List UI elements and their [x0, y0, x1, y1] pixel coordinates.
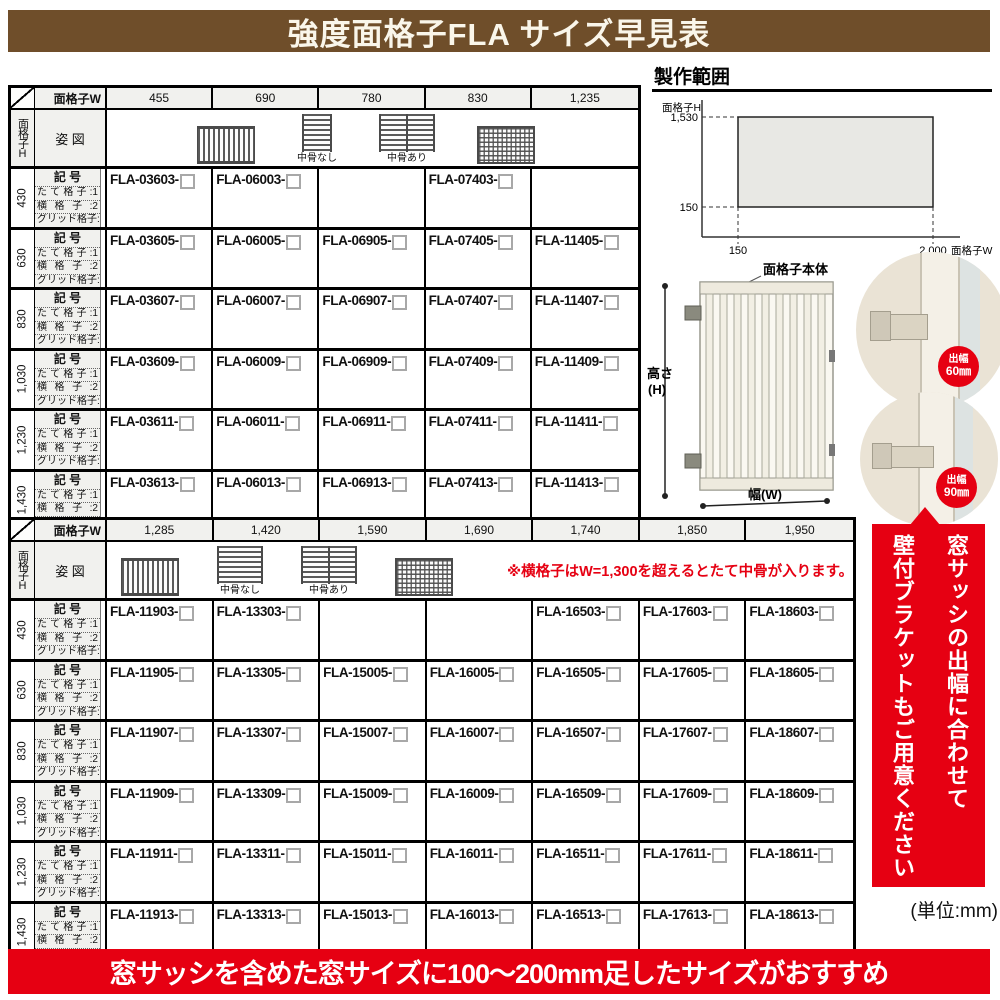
row-height-header: 1,030	[11, 351, 35, 409]
code-cell: FLA-11909-	[107, 783, 214, 841]
code-suffix-box	[180, 477, 195, 492]
code-cell: FLA-17605-	[640, 662, 747, 720]
code-suffix-box	[712, 848, 727, 863]
legend-line: グリッド格子:3	[35, 334, 100, 348]
code-cell: FLA-11409-	[532, 351, 638, 409]
figure-cell: 中骨なし中骨あり	[107, 110, 638, 166]
code-cell: FLA-18607-	[746, 722, 853, 780]
code-cell: FLA-13311-	[214, 843, 321, 901]
legend-line: 横格子:2	[35, 934, 100, 948]
product-code: FLA-18603-	[749, 604, 818, 619]
width-axis-label: 面格子W	[35, 520, 107, 540]
code-suffix-box	[818, 848, 833, 863]
code-cell: FLA-18611-	[746, 843, 853, 901]
width-axis-label: 面格子W	[35, 88, 107, 108]
corner-diagonal-cell	[11, 88, 35, 108]
legend-line: 横格子:2	[35, 442, 100, 456]
horizontal-midbone-lattice-icon-glyph	[379, 114, 435, 152]
product-code: FLA-16011-	[430, 846, 498, 861]
legend-line: 横格子:2	[35, 381, 100, 395]
product-code: FLA-17603-	[643, 604, 712, 619]
legend-box: 記 号たて格子:1横格子:2グリッド格子:3	[35, 783, 101, 841]
row-height-value: 1,030	[17, 365, 29, 394]
code-suffix-box	[819, 727, 834, 742]
corner-diagonal-cell	[11, 520, 35, 540]
product-code: FLA-03607-	[110, 293, 179, 308]
product-code: FLA-13307-	[217, 725, 286, 740]
row-height-value: 1,430	[17, 918, 29, 947]
product-code: FLA-07411-	[429, 414, 497, 429]
code-suffix-box	[819, 606, 834, 621]
callout-line-2: 壁付ブラケットもご用意ください	[875, 534, 929, 887]
grid-lattice-icon	[477, 112, 535, 164]
legend-line: 横格子:2	[35, 753, 100, 767]
product-code: FLA-11913-	[110, 907, 178, 922]
code-cell: FLA-03609-	[107, 351, 213, 409]
product-code: FLA-06909-	[322, 354, 391, 369]
code-suffix-box	[286, 848, 301, 863]
code-suffix-box	[499, 909, 514, 924]
range-h-max: 1,530	[670, 112, 698, 124]
width-header-row: 面格子W4556907808301,235	[11, 88, 638, 110]
figure-cell: 中骨なし中骨あり※横格子はW=1,300を超えるとたて中骨が入ります。	[107, 542, 853, 598]
product-code: FLA-06007-	[216, 293, 285, 308]
column-width-header: 780	[319, 88, 425, 108]
figure-row: 面格子H姿 図中骨なし中骨あり	[11, 110, 638, 169]
product-code: FLA-16505-	[536, 665, 605, 680]
product-code: FLA-11409-	[535, 354, 603, 369]
bone-label: 中骨あり	[309, 586, 349, 596]
product-code: FLA-11907-	[110, 725, 178, 740]
code-cell: FLA-06909-	[319, 351, 425, 409]
product-code: FLA-17605-	[643, 665, 712, 680]
row-legend: 記 号たて格子:1横格子:2グリッド格子:3	[35, 290, 107, 348]
lattice-bars	[706, 294, 825, 478]
product-code: FLA-16503-	[536, 604, 605, 619]
code-suffix-box	[498, 416, 513, 431]
code-cell: FLA-11411-	[532, 411, 638, 469]
row-height-value: 1,030	[17, 797, 29, 826]
code-suffix-box	[286, 295, 301, 310]
size-row-430: 430記 号たて格子:1横格子:2グリッド格子:3FLA-03603-FLA-0…	[11, 169, 638, 230]
product-code: FLA-11911-	[110, 846, 177, 861]
dim-height-unit: (H)	[648, 382, 666, 397]
legend-box: 記 号たて格子:1横格子:2グリッド格子:3	[35, 843, 101, 901]
row-legend: 記 号たて格子:1横格子:2グリッド格子:3	[35, 783, 107, 841]
row-height-value: 430	[17, 620, 29, 639]
product-code: FLA-18613-	[749, 907, 818, 922]
legend-box: 記 号たて格子:1横格子:2グリッド格子:3	[35, 662, 101, 720]
column-width-header: 1,285	[107, 520, 214, 540]
recommendation-banner: 窓サッシを含めた窓サイズに100〜200mm足したサイズがおすすめ	[8, 949, 990, 994]
code-suffix-box	[499, 788, 514, 803]
symbol-label: 記 号	[35, 472, 100, 489]
column-width-header: 1,950	[746, 520, 853, 540]
row-height-header: 630	[11, 230, 35, 288]
dim-width-label: 幅(W)	[748, 487, 782, 502]
legend-line: たて格子:1	[35, 186, 100, 200]
column-width-header: 690	[213, 88, 319, 108]
figure-row-label: 姿 図	[35, 542, 107, 598]
row-height-value: 830	[17, 741, 29, 760]
unit-note: (単位:mm)	[858, 896, 998, 923]
size-row-830: 830記 号たて格子:1横格子:2グリッド格子:3FLA-11907-FLA-1…	[11, 722, 853, 783]
code-cell: FLA-15011-	[320, 843, 427, 901]
code-cell: FLA-18609-	[746, 783, 853, 841]
row-height-value: 630	[17, 681, 29, 700]
product-code: FLA-03605-	[110, 233, 179, 248]
callout-notch	[910, 507, 940, 525]
code-cell: FLA-16505-	[533, 662, 640, 720]
row-legend: 記 号たて格子:1横格子:2グリッド格子:3	[35, 351, 107, 409]
legend-line: グリッド格子:3	[35, 455, 100, 469]
legend-box: 記 号たて格子:1横格子:2グリッド格子:3	[35, 351, 101, 409]
vertical-lattice-icon	[121, 544, 179, 596]
product-code: FLA-07407-	[429, 293, 498, 308]
code-suffix-box	[179, 727, 194, 742]
row-legend: 記 号たて格子:1横格子:2グリッド格子:3	[35, 411, 107, 469]
horizontal-midbone-lattice-icon: 中骨あり	[379, 112, 435, 164]
product-code: FLA-17611-	[643, 846, 711, 861]
code-suffix-box	[286, 477, 301, 492]
code-cell: FLA-17609-	[640, 783, 747, 841]
row-legend: 記 号たて格子:1横格子:2グリッド格子:3	[35, 662, 107, 720]
code-suffix-box	[499, 727, 514, 742]
product-code: FLA-06907-	[322, 293, 391, 308]
bone-label: 中骨あり	[387, 154, 427, 164]
code-suffix-box	[286, 727, 301, 742]
code-suffix-box	[819, 788, 834, 803]
production-range-title: 製作範囲	[653, 65, 730, 88]
code-suffix-box	[179, 667, 194, 682]
code-suffix-box	[819, 667, 834, 682]
code-cell: FLA-11903-	[107, 601, 214, 659]
code-cell	[319, 169, 425, 227]
product-code: FLA-13305-	[217, 665, 286, 680]
code-cell: FLA-06911-	[319, 411, 425, 469]
product-code: FLA-16507-	[536, 725, 605, 740]
code-suffix-box	[392, 295, 407, 310]
legend-line: たて格子:1	[35, 860, 100, 874]
product-code: FLA-16007-	[430, 725, 499, 740]
code-suffix-box	[392, 235, 407, 250]
size-table-2: 面格子W1,2851,4201,5901,6901,7401,8501,950面…	[8, 517, 856, 964]
grid-lattice-icon-glyph	[395, 558, 453, 596]
symbol-label: 記 号	[35, 601, 100, 618]
code-cell: FLA-13305-	[214, 662, 321, 720]
code-cell: FLA-13303-	[214, 601, 321, 659]
column-width-header: 1,850	[640, 520, 747, 540]
code-suffix-box	[713, 727, 728, 742]
code-cell: FLA-06005-	[213, 230, 319, 288]
bone-label: 中骨なし	[220, 586, 260, 596]
code-suffix-box	[606, 667, 621, 682]
product-code: FLA-11905-	[110, 665, 178, 680]
row-legend: 記 号たて格子:1横格子:2グリッド格子:3	[35, 722, 107, 780]
legend-line: グリッド格子:3	[35, 274, 100, 288]
vertical-lattice-icon	[197, 112, 255, 164]
size-row-1,230: 1,230記 号たて格子:1横格子:2グリッド格子:3FLA-03611-FLA…	[11, 411, 638, 472]
range-w-min: 150	[729, 245, 747, 257]
row-legend: 記 号たて格子:1横格子:2グリッド格子:3	[35, 230, 107, 288]
row-height-value: 1,230	[17, 857, 29, 886]
product-code: FLA-03609-	[110, 354, 179, 369]
code-cell: FLA-13307-	[214, 722, 321, 780]
legend-line: 横格子:2	[35, 321, 100, 335]
code-cell: FLA-07405-	[426, 230, 532, 288]
code-suffix-box	[393, 667, 408, 682]
code-suffix-box	[393, 788, 408, 803]
product-code: FLA-06905-	[322, 233, 391, 248]
vertical-lattice-icon-glyph	[197, 126, 255, 164]
debasa-60-badge: 出幅 60㎜	[938, 346, 979, 387]
legend-line: たて格子:1	[35, 679, 100, 693]
bracket-60	[886, 314, 928, 339]
code-cell: FLA-16503-	[533, 601, 640, 659]
code-suffix-box	[392, 477, 407, 492]
product-code: FLA-15011-	[323, 846, 391, 861]
product-label: 面格子本体	[763, 262, 829, 277]
code-cell	[427, 601, 534, 659]
dim-height-label: 高さ	[647, 366, 673, 381]
symbol-label: 記 号	[35, 722, 100, 739]
legend-line: 横格子:2	[35, 632, 100, 646]
code-cell: FLA-16005-	[427, 662, 534, 720]
legend-line: たて格子:1	[35, 247, 100, 261]
code-cell	[532, 169, 638, 227]
row-height-value: 630	[17, 249, 29, 268]
product-code: FLA-16013-	[430, 907, 499, 922]
code-suffix-box	[606, 727, 621, 742]
legend-line: グリッド格子:3	[35, 395, 100, 409]
row-height-value: 1,230	[17, 425, 29, 454]
code-cell: FLA-11405-	[532, 230, 638, 288]
code-cell: FLA-06007-	[213, 290, 319, 348]
code-suffix-box	[286, 235, 301, 250]
grid-lattice-icon	[395, 544, 453, 596]
horizontal-lattice-icon-glyph	[302, 114, 332, 152]
code-suffix-box	[391, 416, 406, 431]
column-width-header: 1,740	[533, 520, 640, 540]
figure-row-label: 姿 図	[35, 110, 107, 166]
callout-line-1: 窓サッシの出幅に合わせて	[929, 534, 983, 887]
code-suffix-box	[713, 606, 728, 621]
product-code: FLA-06011-	[216, 414, 284, 429]
code-suffix-box	[606, 788, 621, 803]
legend-line: グリッド格子:3	[35, 706, 100, 720]
code-suffix-box	[180, 356, 195, 371]
code-suffix-box	[286, 174, 301, 189]
product-code: FLA-17607-	[643, 725, 712, 740]
legend-line: たて格子:1	[35, 368, 100, 382]
legend-line: グリッド格子:3	[35, 827, 100, 841]
badge-value: 90㎜	[944, 486, 969, 499]
bracket-callout: 窓サッシの出幅に合わせて 壁付ブラケットもご用意ください	[872, 524, 985, 887]
code-cell: FLA-03611-	[107, 411, 213, 469]
product-code: FLA-16509-	[536, 786, 605, 801]
product-code: FLA-16511-	[536, 846, 604, 861]
code-cell: FLA-03605-	[107, 230, 213, 288]
bracket-90	[888, 446, 934, 468]
code-suffix-box	[498, 356, 513, 371]
code-cell: FLA-17603-	[640, 601, 747, 659]
code-suffix-box	[604, 356, 619, 371]
row-height-value: 830	[17, 309, 29, 328]
legend-line: 横格子:2	[35, 813, 100, 827]
code-suffix-box	[180, 295, 195, 310]
figure-row: 面格子H姿 図中骨なし中骨あり※横格子はW=1,300を超えるとたて中骨が入りま…	[11, 542, 853, 601]
code-suffix-box	[713, 788, 728, 803]
product-code: FLA-07409-	[429, 354, 498, 369]
symbol-label: 記 号	[35, 904, 100, 921]
midbone-note: ※横格子はW=1,300を超えるとたて中骨が入ります。	[507, 560, 853, 581]
row-legend: 記 号たて格子:1横格子:2グリッド格子:3	[35, 169, 107, 227]
row-height-header: 430	[11, 601, 35, 659]
code-suffix-box	[180, 235, 195, 250]
code-cell: FLA-03603-	[107, 169, 213, 227]
code-cell: FLA-06009-	[213, 351, 319, 409]
legend-line: 横格子:2	[35, 260, 100, 274]
grid-lattice-icon-glyph	[477, 126, 535, 164]
code-cell: FLA-16509-	[533, 783, 640, 841]
code-cell: FLA-15007-	[320, 722, 427, 780]
symbol-label: 記 号	[35, 290, 100, 307]
product-figure: 面格子本体 高さ (H) 幅(W)	[645, 258, 860, 520]
product-code: FLA-18609-	[749, 786, 818, 801]
product-code: FLA-03603-	[110, 172, 179, 187]
row-height-header: 430	[11, 169, 35, 227]
code-suffix-box	[498, 477, 513, 492]
code-suffix-box	[393, 909, 408, 924]
code-suffix-box	[603, 416, 618, 431]
code-cell: FLA-11911-	[107, 843, 214, 901]
product-code: FLA-07405-	[429, 233, 498, 248]
code-cell: FLA-11905-	[107, 662, 214, 720]
horizontal-midbone-lattice-icon-glyph	[301, 546, 357, 584]
code-suffix-box	[179, 909, 194, 924]
product-code: FLA-07413-	[429, 475, 498, 490]
product-code: FLA-03613-	[110, 475, 179, 490]
code-cell: FLA-15005-	[320, 662, 427, 720]
code-cell: FLA-07403-	[426, 169, 532, 227]
code-cell: FLA-06905-	[319, 230, 425, 288]
code-suffix-box	[179, 788, 194, 803]
symbol-label: 記 号	[35, 783, 100, 800]
legend-box: 記 号たて格子:1横格子:2グリッド格子:3	[35, 169, 101, 227]
product-code: FLA-11407-	[535, 293, 603, 308]
code-suffix-box	[498, 235, 513, 250]
column-width-header: 455	[107, 88, 213, 108]
legend-line: たて格子:1	[35, 307, 100, 321]
symbol-label: 記 号	[35, 230, 100, 247]
code-suffix-box	[393, 727, 408, 742]
code-cell: FLA-07407-	[426, 290, 532, 348]
code-suffix-box	[179, 416, 194, 431]
code-cell: FLA-06907-	[319, 290, 425, 348]
product-code: FLA-17609-	[643, 786, 712, 801]
debasa-90-badge: 出幅 90㎜	[936, 467, 977, 508]
product-code: FLA-11405-	[535, 233, 603, 248]
product-code: FLA-07403-	[429, 172, 498, 187]
product-code: FLA-11411-	[535, 414, 602, 429]
code-suffix-box	[178, 848, 193, 863]
size-row-1,030: 1,030記 号たて格子:1横格子:2グリッド格子:3FLA-03609-FLA…	[11, 351, 638, 412]
product-code: FLA-11413-	[535, 475, 603, 490]
size-table-1: 面格子W4556907808301,235面格子H姿 図中骨なし中骨あり430記…	[8, 85, 641, 532]
row-height-header: 1,030	[11, 783, 35, 841]
product-code: FLA-03611-	[110, 414, 178, 429]
vertical-lattice-icon-glyph	[121, 558, 179, 596]
code-cell: FLA-13309-	[214, 783, 321, 841]
row-legend: 記 号たて格子:1横格子:2グリッド格子:3	[35, 843, 107, 901]
legend-line: 横格子:2	[35, 874, 100, 888]
row-height-header: 630	[11, 662, 35, 720]
product-code: FLA-06005-	[216, 233, 285, 248]
code-cell: FLA-03607-	[107, 290, 213, 348]
code-suffix-box	[819, 909, 834, 924]
range-area	[738, 117, 933, 207]
code-suffix-box	[286, 606, 301, 621]
legend-line: 横格子:2	[35, 502, 100, 516]
code-suffix-box	[606, 606, 621, 621]
column-width-header: 1,420	[214, 520, 321, 540]
legend-line: 横格子:2	[35, 200, 100, 214]
code-cell: FLA-16009-	[427, 783, 534, 841]
detail-photo-60	[856, 252, 1000, 408]
badge-value: 60㎜	[946, 365, 971, 378]
product-code: FLA-06913-	[322, 475, 391, 490]
product-code: FLA-15013-	[323, 907, 392, 922]
code-cell: FLA-11407-	[532, 290, 638, 348]
product-code: FLA-06911-	[322, 414, 390, 429]
horizontal-lattice-icon: 中骨なし	[297, 112, 337, 164]
legend-box: 記 号たて格子:1横格子:2グリッド格子:3	[35, 411, 101, 469]
wall-bracket	[685, 306, 701, 320]
column-width-header: 1,690	[427, 520, 534, 540]
horizontal-lattice-icon-glyph	[217, 546, 263, 584]
code-cell: FLA-18603-	[746, 601, 853, 659]
code-suffix-box	[499, 667, 514, 682]
section-underline	[652, 89, 992, 92]
product-code: FLA-18607-	[749, 725, 818, 740]
page-title: 強度面格子FLA サイズ早見表	[8, 10, 990, 52]
product-code: FLA-13303-	[217, 604, 286, 619]
code-suffix-box	[498, 174, 513, 189]
symbol-label: 記 号	[35, 411, 100, 428]
code-cell	[320, 601, 427, 659]
code-suffix-box	[604, 235, 619, 250]
legend-line: たて格子:1	[35, 921, 100, 935]
product-code: FLA-17613-	[643, 907, 712, 922]
code-suffix-box	[179, 606, 194, 621]
code-cell: FLA-07411-	[426, 411, 532, 469]
size-row-1,030: 1,030記 号たて格子:1横格子:2グリッド格子:3FLA-11909-FLA…	[11, 783, 853, 844]
code-suffix-box	[498, 295, 513, 310]
code-suffix-box	[180, 174, 195, 189]
legend-line: たて格子:1	[35, 618, 100, 632]
code-cell: FLA-07409-	[426, 351, 532, 409]
symbol-label: 記 号	[35, 169, 100, 186]
product-code: FLA-15007-	[323, 725, 392, 740]
code-suffix-box	[713, 909, 728, 924]
horizontal-midbone-lattice-icon: 中骨あり	[301, 544, 357, 596]
product-code: FLA-18611-	[749, 846, 817, 861]
product-code: FLA-13311-	[217, 846, 285, 861]
legend-line: グリッド格子:3	[35, 887, 100, 901]
detail-photo-90	[860, 392, 998, 526]
product-code: FLA-18605-	[749, 665, 818, 680]
product-code: FLA-16513-	[536, 907, 605, 922]
